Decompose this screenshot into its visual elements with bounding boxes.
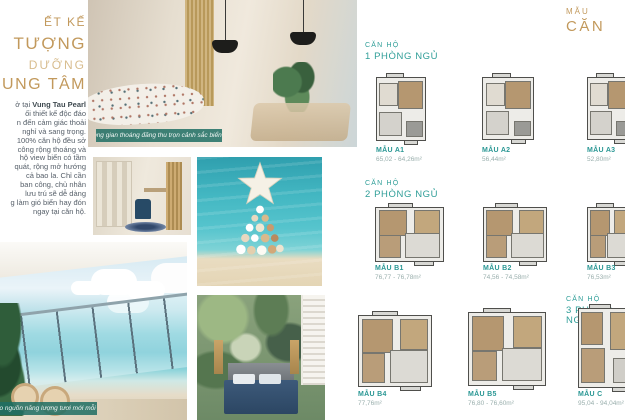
plan-label: MẪU B3 76,53m²	[587, 265, 616, 281]
paragraph-text: ở tại	[15, 100, 30, 109]
plan-room	[406, 121, 422, 137]
floor-plan-a3	[587, 77, 625, 140]
plan-room	[614, 210, 625, 234]
rug	[125, 222, 166, 232]
plan-name: MẪU A2	[482, 147, 510, 154]
plan-room	[581, 348, 605, 383]
plan-area: 65,02 - 64,26m²	[376, 157, 422, 164]
plan-room	[608, 81, 625, 109]
plan-label: MẪU B5 76,80 - 76,60m²	[468, 391, 514, 407]
plan-room	[379, 83, 397, 106]
title-line: DƯỠNG	[0, 59, 86, 71]
title-line: TƯỢNG	[0, 35, 86, 52]
section-header-line: CĂN HỘ	[365, 180, 438, 187]
plan-area: 77,76m²	[358, 401, 387, 408]
plan-room	[486, 111, 509, 135]
floor-plan-a1	[376, 77, 426, 141]
plan-room	[513, 316, 542, 348]
dressing-room-photo	[93, 157, 191, 235]
right-panel-header: MẪU CĂN	[566, 8, 625, 34]
bedroom-photo	[197, 295, 325, 420]
plan-room	[607, 233, 625, 258]
plan-name: MẪU B3	[587, 265, 616, 272]
plan-room	[472, 316, 504, 351]
plan-room	[519, 210, 543, 234]
plan-room	[362, 319, 393, 353]
living-room-photo: Không gian thoáng đãng thu trọn cảnh sắc…	[88, 0, 357, 147]
plan-label: MẪU B1 76,77 - 76,78m²	[375, 265, 421, 281]
bedside-lamp-icon	[214, 340, 223, 374]
window-shutter	[301, 295, 325, 385]
plan-name: MẪU B4	[358, 391, 387, 398]
plan-room	[581, 312, 603, 345]
plan-name: MẪU B1	[375, 265, 421, 272]
starfish-icon	[215, 161, 305, 282]
photo-caption: Không gian thoáng đãng thu trọn cảnh sắc…	[96, 129, 222, 142]
plan-room	[616, 121, 625, 136]
plan-room	[514, 121, 531, 136]
chair	[135, 199, 151, 219]
section-header-line: 2 PHÒNG NGỦ	[365, 190, 438, 200]
plan-room	[379, 112, 401, 136]
plan-label: MẪU C 95,04 - 94,04m²	[578, 391, 624, 407]
plan-room	[590, 111, 611, 135]
title-line: UNG TÂM	[0, 77, 86, 93]
plan-label: MẪU B4 77,76m²	[358, 391, 387, 407]
floor-plan-b3	[587, 207, 625, 262]
section-header-line: CĂN HỘ	[365, 42, 438, 49]
pendant-lamp-icon	[212, 40, 238, 53]
plan-name: MẪU B2	[483, 265, 529, 272]
plan-label: MẪU A1 65,02 - 64,26m²	[376, 147, 422, 163]
plan-area: 74,56 - 74,58m²	[483, 275, 529, 282]
plan-room	[400, 319, 428, 350]
plan-area: 76,53m²	[587, 275, 616, 282]
section-header-line: CĂN HỘ	[566, 296, 625, 303]
plan-room	[486, 235, 507, 258]
floor-plan-a2	[482, 77, 534, 140]
plan-area: 76,77 - 76,78m²	[375, 275, 421, 282]
plan-area: 95,04 - 94,04m²	[578, 401, 624, 408]
bedside-lamp-icon	[290, 340, 299, 374]
plan-label: MẪU A3 52,80m²	[587, 147, 615, 163]
plan-room	[398, 81, 423, 109]
cloud	[71, 281, 105, 295]
plan-room	[405, 233, 441, 258]
plan-room	[613, 358, 625, 383]
plan-room	[486, 210, 513, 236]
section-header-line: 1 PHÒNG NGỦ	[365, 52, 438, 62]
page-title: ẾT KẾ TƯỢNG DƯỠNG UNG TÂM	[0, 16, 86, 93]
plan-label: MẪU B2 74,56 - 74,58m²	[483, 265, 529, 281]
intro-paragraph: ở tại Vung Tau Pearl ối thiết kế độc đáo…	[0, 101, 86, 217]
pendant-lamp-icon	[290, 32, 316, 45]
plan-room	[505, 81, 531, 109]
brand-name: Vung Tau Pearl	[32, 100, 86, 109]
title-line: ẾT KẾ	[0, 16, 86, 28]
plan-area: 56,44m²	[482, 157, 510, 164]
plan-name: MẪU A1	[376, 147, 422, 154]
section-header-1br: CĂN HỘ 1 PHÒNG NGỦ	[365, 42, 438, 62]
plan-area: 76,80 - 76,60m²	[468, 401, 514, 408]
floor-plan-b5	[468, 312, 546, 386]
plan-area: 52,80m²	[587, 157, 615, 164]
plan-room	[362, 353, 386, 383]
bed	[224, 380, 298, 414]
plan-room	[590, 83, 608, 106]
plan-name: MẪU B5	[468, 391, 514, 398]
starfish-shells-photo	[197, 157, 322, 286]
plan-room	[379, 235, 401, 258]
header-small: MẪU	[566, 8, 625, 16]
plan-room	[610, 312, 625, 350]
plan-room	[590, 235, 606, 258]
plan-room	[472, 351, 497, 382]
plan-room	[511, 233, 544, 258]
floor-plan-b1	[375, 207, 444, 262]
plan-name: MẪU C	[578, 391, 624, 398]
plan-name: MẪU A3	[587, 147, 615, 154]
brochure-page: ẾT KẾ TƯỢNG DƯỠNG UNG TÂM ở tại Vung Tau…	[0, 0, 625, 420]
plan-room	[379, 210, 408, 236]
plan-room	[414, 210, 440, 234]
header-large: CĂN	[566, 19, 625, 34]
section-header-2br: CĂN HỘ 2 PHÒNG NGỦ	[365, 180, 438, 200]
floor-plan-b4	[358, 315, 432, 387]
plan-room	[502, 348, 542, 382]
plan-label: MẪU A2 56,44m²	[482, 147, 510, 163]
paragraph-line: ngay tại căn hộ.	[0, 208, 86, 217]
floor-plan-b2	[483, 207, 547, 262]
plan-room	[390, 350, 428, 383]
photo-caption: tái tạo nguồn năng lượng tươi mới mỗi ng…	[0, 402, 97, 415]
plan-room	[486, 83, 505, 106]
balcony-ceiling	[0, 242, 187, 278]
floor-plan-c	[578, 308, 625, 388]
desk	[144, 188, 177, 192]
dining-set	[250, 103, 351, 141]
balcony-sea-view-photo: tái tạo nguồn năng lượng tươi mới mỗi ng…	[0, 242, 187, 420]
